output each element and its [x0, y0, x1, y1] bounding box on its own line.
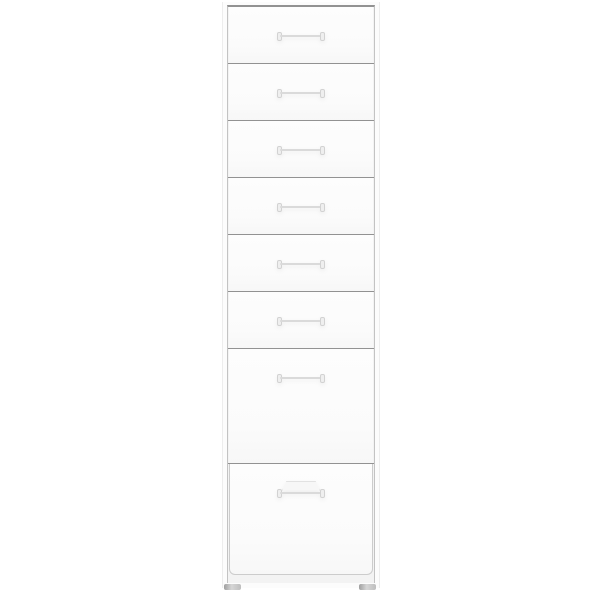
drawer-handle — [277, 316, 325, 327]
handle-mount-right — [320, 260, 325, 269]
drawer-front — [229, 7, 373, 63]
photo-background — [0, 0, 600, 600]
drawer-front — [229, 464, 373, 576]
drawer-1 — [228, 7, 374, 64]
caster-foot-left — [224, 584, 241, 590]
handle-wire-bar — [280, 320, 322, 322]
drawer-front — [229, 349, 373, 463]
handle-wire-bar — [280, 206, 322, 208]
drawer-6 — [228, 292, 374, 349]
drawer-8 — [228, 464, 374, 578]
label-holder-plate — [282, 481, 320, 491]
handle-wire-bar — [280, 492, 322, 494]
handle-mount-right — [320, 317, 325, 326]
drawer-stack — [228, 7, 374, 577]
drawer-7 — [228, 349, 374, 464]
drawer-5 — [228, 235, 374, 292]
cabinet-frame — [227, 5, 375, 583]
handle-mount-right — [320, 489, 325, 498]
drawer-front — [229, 178, 373, 234]
drawer-front — [229, 235, 373, 291]
drawer-handle — [277, 373, 325, 384]
handle-wire-bar — [280, 35, 322, 37]
drawer-2 — [228, 64, 374, 121]
drawer-front — [229, 64, 373, 120]
drawer-front — [229, 292, 373, 348]
drawer-handle — [277, 259, 325, 270]
handle-mount-right — [320, 374, 325, 383]
handle-mount-right — [320, 203, 325, 212]
drawer-3 — [228, 121, 374, 178]
caster-foot-right — [359, 584, 376, 590]
drawer-handle — [277, 145, 325, 156]
drawer-cabinet — [222, 2, 378, 590]
drawer-handle — [277, 488, 325, 499]
drawer-handle — [277, 202, 325, 213]
handle-wire-bar — [280, 149, 322, 151]
handle-mount-right — [320, 146, 325, 155]
drawer-handle — [277, 88, 325, 99]
handle-wire-bar — [280, 263, 322, 265]
handle-wire-bar — [280, 92, 322, 94]
handle-wire-bar — [280, 377, 322, 379]
drawer-handle — [277, 31, 325, 42]
handle-mount-right — [320, 32, 325, 41]
cabinet-side-panels — [222, 2, 380, 588]
drawer-4 — [228, 178, 374, 235]
drawer-front — [229, 121, 373, 177]
handle-mount-right — [320, 89, 325, 98]
